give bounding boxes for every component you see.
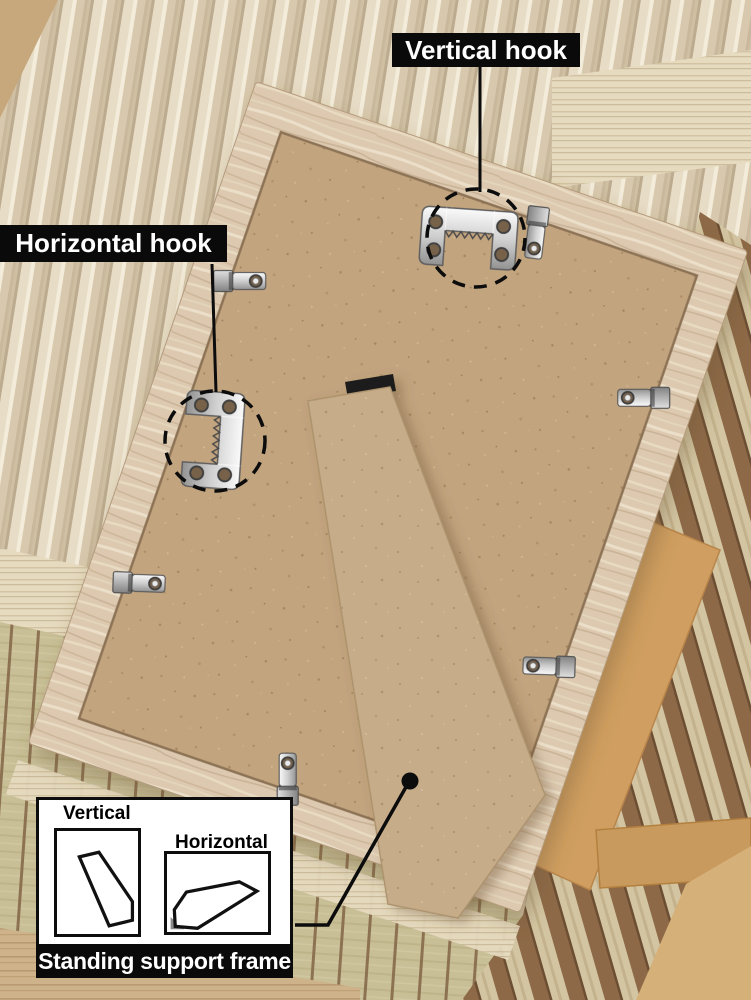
inset-vertical-label: Vertical — [63, 803, 131, 825]
vertical-stand-outline — [57, 831, 138, 934]
inset-horizontal-diagram — [164, 851, 271, 935]
inset-title-text: Standing support frame — [38, 948, 291, 975]
standing-support-inset: Vertical Horizontal Standing support fra… — [36, 797, 293, 978]
horizontal-hook-label: Horizontal hook — [0, 225, 227, 262]
product-photo: Vertical hook Horizontal hook Vertical H… — [0, 0, 751, 1000]
metal-clip-icon — [618, 387, 670, 408]
metal-clip-icon — [523, 655, 576, 678]
metal-clip-icon — [214, 271, 266, 292]
inset-title-bar: Standing support frame — [36, 944, 293, 978]
vertical-hook-label: Vertical hook — [392, 33, 580, 67]
horizontal-stand-outline — [167, 854, 268, 932]
metal-clip-icon — [113, 572, 166, 595]
inset-vertical-diagram — [54, 828, 141, 937]
